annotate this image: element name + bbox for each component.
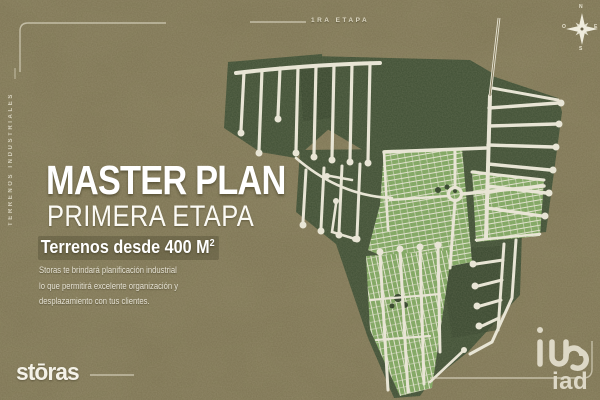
subtitle: PRIMERA ETAPA (47, 202, 254, 232)
terrain-size-sup: 2 (210, 238, 215, 249)
compass-n-label: N (579, 4, 583, 10)
description-paragraph: Storas te brindará planificación industr… (39, 263, 178, 310)
iad-logo-text: iad (552, 370, 588, 394)
storas-logo: stōras (16, 359, 79, 387)
description-line: lo que permitirá excelente organización … (39, 279, 178, 295)
compass-w-label: O (562, 24, 566, 30)
description-line: desplazamiento con tus clientes. (39, 294, 178, 310)
main-title: MASTER PLAN (46, 160, 285, 201)
side-label-terrenos-industriales: TERRENOS INDUSTRIALES (8, 84, 14, 226)
description-line: Storas te brindará planificación industr… (39, 263, 178, 279)
compass-s-label: S (579, 46, 582, 52)
compass-e-label: E (594, 24, 597, 30)
stage-label: 1RA ETAPA (311, 17, 369, 24)
terrain-size-text: Terrenos desde 400 M (41, 237, 210, 257)
flyer: 1RA ETAPA TERRENOS INDUSTRIALES MASTER P… (0, 0, 600, 400)
terrain-size-badge: Terrenos desde 400 M2 (38, 236, 219, 260)
